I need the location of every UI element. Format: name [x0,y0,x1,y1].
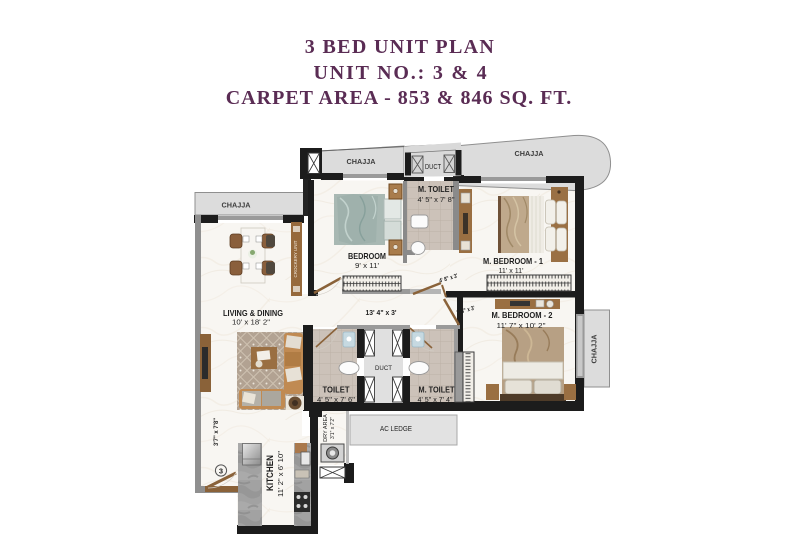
svg-text:TOILET: TOILET [323,385,351,395]
svg-text:CHAJJA: CHAJJA [222,201,252,210]
svg-text:BEDROOM: BEDROOM [348,251,386,261]
svg-text:CARPET AREA - 853 & 846 SQ. FT: CARPET AREA - 853 & 846 SQ. FT. [226,87,572,109]
svg-text:13' 4" x 3': 13' 4" x 3' [366,308,397,317]
svg-text:4' 5" x 7' 4": 4' 5" x 7' 4" [418,395,453,404]
svg-text:9' x 11': 9' x 11' [355,261,380,270]
svg-text:CHAJJA: CHAJJA [347,157,377,166]
svg-text:DUCT: DUCT [375,366,392,372]
svg-text:CROCKERY UNIT: CROCKERY UNIT [293,240,298,277]
svg-text:11' x 11': 11' x 11' [499,266,525,275]
svg-text:3'1" x 7'2": 3'1" x 7'2" [330,417,336,439]
svg-text:3 BED UNIT PLAN: 3 BED UNIT PLAN [305,36,495,58]
svg-text:M. TOILET: M. TOILET [419,385,456,395]
svg-text:10' x 18' 2": 10' x 18' 2" [232,318,270,327]
svg-text:11' 7" x 10' 2": 11' 7" x 10' 2" [497,321,546,330]
svg-text:M. BEDROOM - 1: M. BEDROOM - 1 [483,256,543,266]
svg-text:DUCT: DUCT [425,164,442,171]
svg-text:KITCHEN: KITCHEN [265,455,276,491]
svg-text:4' 5" x 7' 6": 4' 5" x 7' 6" [317,395,355,404]
svg-text:3'7" x 7'8": 3'7" x 7'8" [214,418,220,446]
svg-text:M. BEDROOM - 2: M. BEDROOM - 2 [492,310,553,320]
svg-text:UNIT NO.: 3 & 4: UNIT NO.: 3 & 4 [314,62,489,84]
svg-text:CHAJJA: CHAJJA [515,149,545,158]
svg-text:3: 3 [219,467,223,476]
svg-text:CHAJJA: CHAJJA [590,334,599,364]
svg-text:4' 5" x 7' 8": 4' 5" x 7' 8" [418,195,455,204]
svg-text:11' 2" x 6' 10": 11' 2" x 6' 10" [276,451,285,497]
svg-text:LIVING & DINING: LIVING & DINING [223,308,283,318]
svg-text:DRY AREA: DRY AREA [323,414,329,442]
svg-text:AC LEDGE: AC LEDGE [380,424,412,433]
svg-text:M. TOILET: M. TOILET [418,184,455,194]
